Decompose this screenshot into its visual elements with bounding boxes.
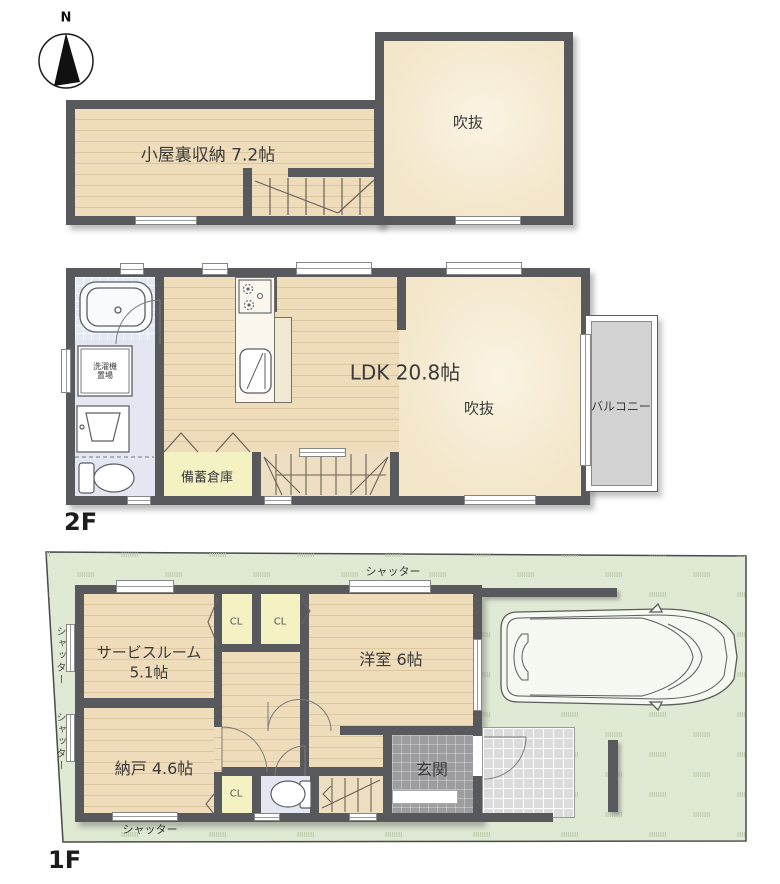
compass-icon <box>39 33 93 88</box>
entrance-porch <box>482 727 575 818</box>
entrance-label: 玄関 <box>416 756 448 780</box>
wall <box>288 168 384 177</box>
floorplan-canvas: N 小屋裏収納 7.2帖 吹抜 LDK 20.8帖 吹抜 バルコニー 備蓄倉庫 … <box>0 0 780 884</box>
wall <box>214 644 309 652</box>
void-area-2f <box>399 277 581 496</box>
compass-north-label: N <box>61 11 72 26</box>
service-room-size-label: 5.1帖 <box>130 662 169 683</box>
window <box>349 580 431 593</box>
balcony-door <box>580 334 591 466</box>
washroom <box>75 340 155 459</box>
wall <box>155 268 164 505</box>
stairs-1f <box>319 776 383 813</box>
wall <box>252 776 261 813</box>
western-room-label: 洋室 6帖 <box>359 646 422 670</box>
stairs-2f <box>261 452 390 496</box>
bathroom <box>75 277 155 340</box>
shutter-label-bottom: シャッター <box>123 821 178 837</box>
window <box>66 714 75 762</box>
wall <box>214 708 222 727</box>
window <box>66 624 75 672</box>
window <box>116 580 174 593</box>
laundry-label: 洗濯機置場 <box>92 362 119 380</box>
window <box>446 262 522 275</box>
stair-rail <box>299 448 346 457</box>
wall <box>252 452 261 505</box>
entrance-step <box>392 790 458 804</box>
attic-storage-label: 小屋裏収納 7.2帖 <box>141 141 275 166</box>
shutter-label-left-1: シャッター <box>52 626 67 686</box>
window <box>112 812 178 821</box>
window <box>464 495 536 505</box>
kitchen-counter <box>235 277 275 403</box>
window <box>264 496 292 505</box>
toilet-room-1f <box>261 776 310 813</box>
window <box>202 263 228 275</box>
porch-wall <box>482 813 553 822</box>
wall <box>214 772 222 813</box>
floor1-label: 1F <box>48 846 81 874</box>
storage-1f-label: 納戸 4.6帖 <box>115 755 194 779</box>
window <box>127 496 151 505</box>
toilet-room-2f <box>75 459 155 496</box>
attic-void-label: 吹抜 <box>453 112 483 133</box>
entrance-door-opening <box>473 736 482 776</box>
hall-1f <box>222 652 300 767</box>
wall <box>397 268 406 330</box>
ldk-label: LDK 20.8帖 <box>350 357 461 386</box>
gate-wall <box>608 740 618 812</box>
wall <box>383 726 392 813</box>
closet-label-1: CL <box>230 617 243 628</box>
wall <box>310 776 319 813</box>
wall <box>340 726 473 735</box>
window <box>254 813 280 821</box>
window <box>135 216 197 225</box>
stock-room-label: 備蓄倉庫 <box>181 467 233 486</box>
window <box>296 262 372 275</box>
window <box>61 349 71 393</box>
kitchen-island <box>274 317 292 403</box>
window <box>349 813 377 821</box>
wall <box>300 594 309 735</box>
wall <box>243 168 252 216</box>
closet-label-2: CL <box>274 617 287 628</box>
wall <box>84 698 222 708</box>
closet-label-3: CL <box>230 789 243 800</box>
window <box>455 216 521 225</box>
shutter-label-top: シャッター <box>366 563 421 579</box>
hall-1f <box>214 727 222 772</box>
shutter-label-left-2: シャッター <box>52 712 67 772</box>
window <box>120 263 144 275</box>
balcony-label: バルコニー <box>591 398 651 415</box>
window <box>473 639 482 711</box>
fence-wall <box>482 588 617 597</box>
wall <box>222 767 392 776</box>
floor2-label: 2F <box>64 508 97 536</box>
service-room-label: サービスルーム <box>97 642 202 663</box>
wall <box>390 452 399 505</box>
void-2f-label: 吹抜 <box>464 398 494 419</box>
